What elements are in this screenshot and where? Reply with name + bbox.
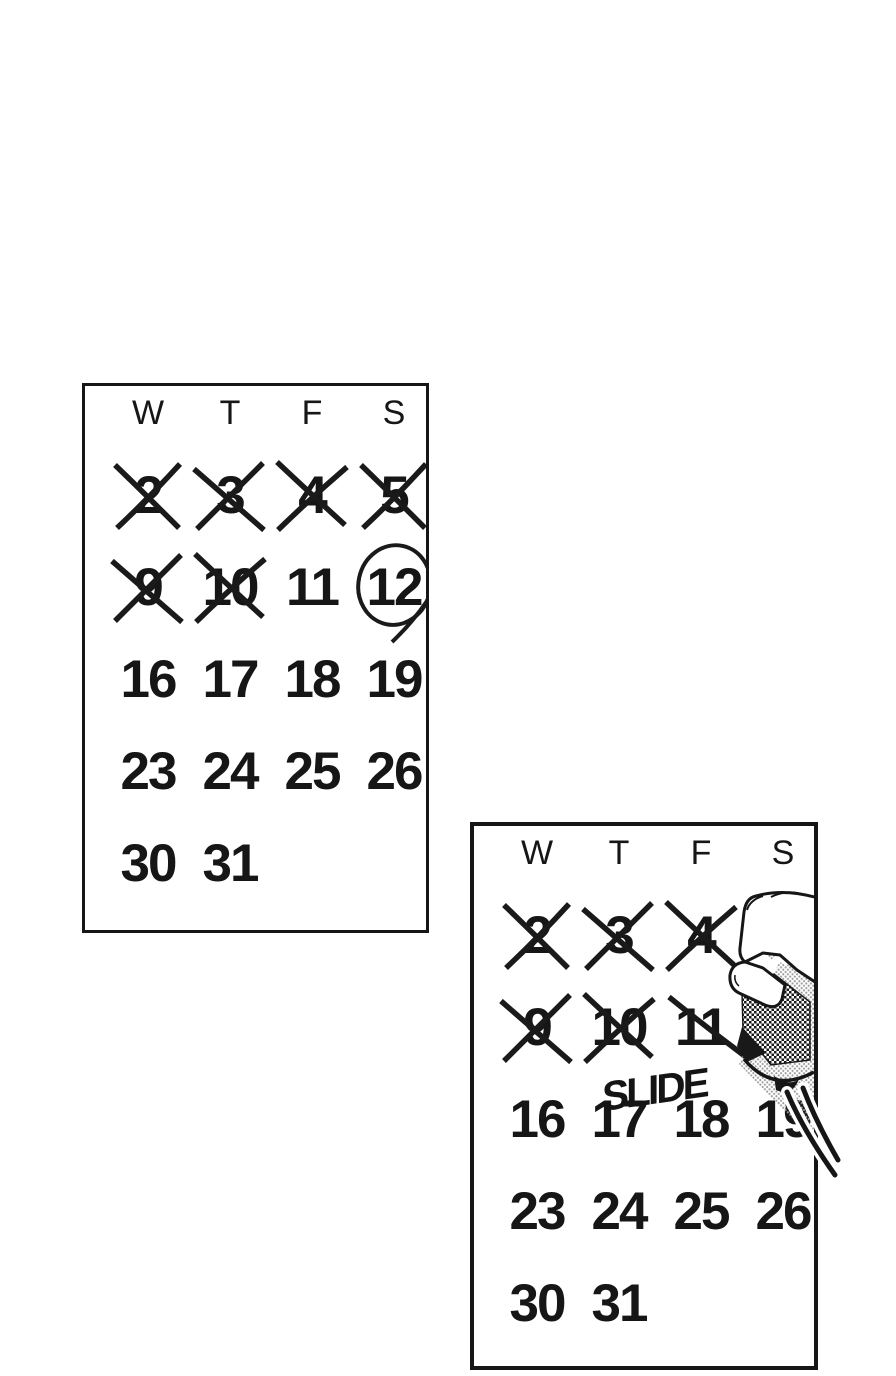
date-cell: 25 [660,1165,742,1257]
date-cell: 12 [742,981,818,1073]
date-cell: 4 [271,449,353,541]
date-number: 9 [134,561,161,614]
date-cell: 11 [271,541,353,633]
date-number: 25 [285,745,340,798]
date-number: 19 [367,653,422,706]
date-cell [742,1257,818,1349]
date-number: 23 [510,1185,565,1238]
date-number: 23 [121,745,176,798]
date-cell: 17 [189,633,271,725]
date-cell: 5 [353,449,429,541]
weekday-header-row: WTFS [496,826,814,880]
calendar-panel-first: WTFS 2345910111216171819232425263031 [82,383,429,933]
date-cell: 26 [742,1165,818,1257]
date-cell: 9 [107,541,189,633]
date-cell: 16 [107,633,189,725]
date-number: 5 [769,909,796,962]
date-number: 11 [675,1001,727,1054]
date-cell: 30 [496,1257,578,1349]
date-number: 19 [756,1093,811,1146]
date-number: 3 [216,469,243,522]
date-cell: 31 [189,817,271,909]
date-cell [353,817,429,909]
weekday-label: W [496,836,578,870]
date-cell: 9 [496,981,578,1073]
date-cell: 10 [189,541,271,633]
date-number: 25 [674,1185,729,1238]
date-number: 10 [592,1001,647,1054]
date-cell: 2 [107,449,189,541]
calendar-panel-second: WTFS 2345910111216171819232425263031 [470,822,818,1370]
date-number: 2 [523,909,550,962]
date-cell: 24 [578,1165,660,1257]
date-number: 16 [121,653,176,706]
date-number: 18 [285,653,340,706]
date-cell: 3 [189,449,271,541]
date-cell: 10 [578,981,660,1073]
date-cell: 25 [271,725,353,817]
weekday-label: F [271,396,353,430]
date-number: 26 [756,1185,811,1238]
date-number: 26 [367,745,422,798]
date-number: 16 [510,1093,565,1146]
date-cell: 31 [578,1257,660,1349]
date-number: 4 [687,909,714,962]
date-cell: 18 [271,633,353,725]
date-cell: 26 [353,725,429,817]
date-cell: 19 [353,633,429,725]
date-number: 5 [380,469,407,522]
date-number: 12 [756,1001,811,1054]
date-number: 30 [510,1277,565,1330]
date-number: 11 [286,561,338,614]
weekday-label: T [189,396,271,430]
date-cell: 23 [496,1165,578,1257]
date-number: 31 [203,837,258,890]
weekday-label: F [660,836,742,870]
date-cell: 24 [189,725,271,817]
weekday-label: W [107,396,189,430]
date-cell: 23 [107,725,189,817]
date-cell: 4 [660,889,742,981]
weekday-label: S [353,396,429,430]
date-number: 17 [203,653,258,706]
date-cell: 2 [496,889,578,981]
date-number: 3 [605,909,632,962]
date-cell: 3 [578,889,660,981]
date-number: 2 [134,469,161,522]
date-number: 9 [523,1001,550,1054]
weeks-grid: 2345910111216171819232425263031 [107,449,426,909]
date-number: 30 [121,837,176,890]
date-number: 10 [203,561,258,614]
weekday-header-row: WTFS [107,386,426,440]
weeks-grid: 2345910111216171819232425263031 [496,889,814,1349]
date-cell: 12 [353,541,429,633]
date-number: 4 [298,469,325,522]
date-number: 24 [592,1185,647,1238]
date-number: 12 [367,561,422,614]
date-cell: 19 [742,1073,818,1165]
date-cell: 5 [742,889,818,981]
date-cell: 16 [496,1073,578,1165]
date-number: 24 [203,745,258,798]
weekday-label: T [578,836,660,870]
date-cell [660,1257,742,1349]
date-cell: 30 [107,817,189,909]
weekday-label: S [742,836,818,870]
date-cell [271,817,353,909]
date-number: 31 [592,1277,647,1330]
